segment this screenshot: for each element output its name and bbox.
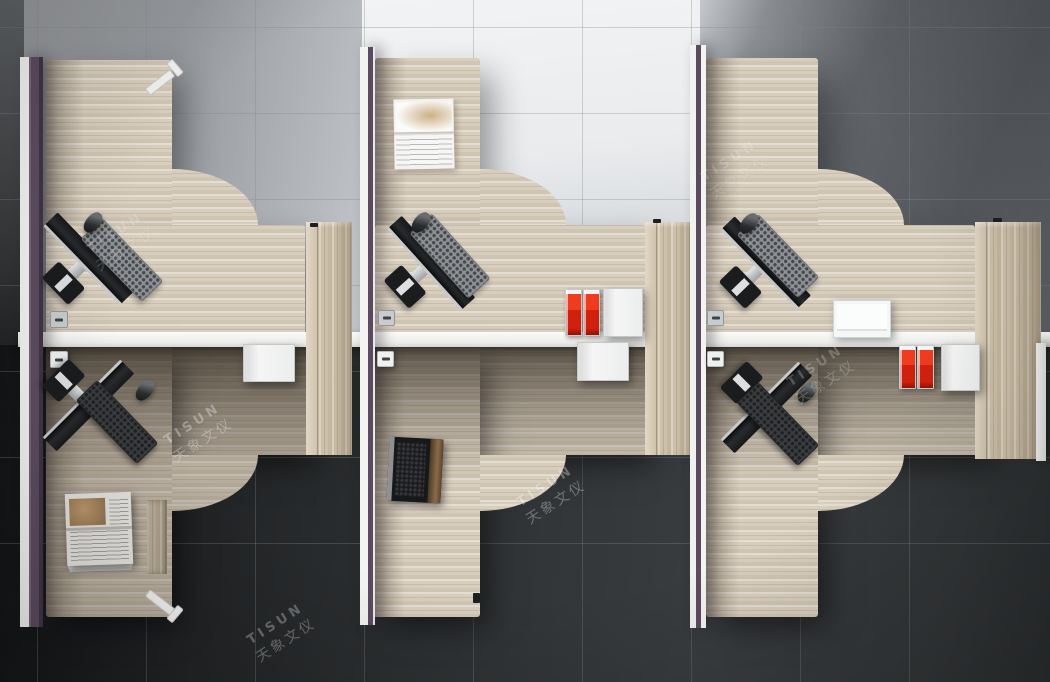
dimlayer <box>172 455 258 511</box>
nw-t2 <box>70 529 129 561</box>
cable-grommet-5 <box>377 351 394 367</box>
storage-cabinet-1 <box>306 222 352 455</box>
cabinet-1-handle <box>310 223 318 227</box>
red-file-2 <box>583 289 600 336</box>
stack-top <box>837 304 887 331</box>
hanging-drawer-2 <box>577 342 629 381</box>
cable-grommet-3 <box>707 310 724 326</box>
cabinet-3-handle <box>993 218 1002 222</box>
nw-img <box>69 498 106 526</box>
grom-slot <box>55 318 63 321</box>
cable-grommet-2 <box>378 310 395 326</box>
laptop <box>386 437 443 504</box>
white-box-2 <box>941 344 980 391</box>
grom-slot <box>55 358 63 361</box>
lp-k <box>395 442 427 497</box>
storage-cabinet-3 <box>975 222 1041 459</box>
white-box-1 <box>603 288 643 337</box>
cable-grommet-1 <box>50 311 68 328</box>
red-file-4 <box>917 345 934 389</box>
cabinet-2-handle <box>653 219 661 223</box>
nw-t1 <box>109 497 128 524</box>
end-panel <box>1036 343 1046 461</box>
paper-stack <box>833 300 891 338</box>
red-file-1 <box>565 289 582 336</box>
under-desk-drawer <box>147 500 167 574</box>
mag-bot <box>396 135 452 166</box>
center-divider <box>18 332 1050 347</box>
grom-slot <box>712 317 720 320</box>
partition-right <box>690 45 706 628</box>
cable-grommet-6 <box>707 351 724 367</box>
red-file-3 <box>899 345 916 389</box>
mag-top <box>396 101 452 132</box>
office-workstation-render: TISUN天象文仪TISUN天象文仪TISUN天象文仪TISUN天象文仪TISU… <box>0 0 1050 682</box>
partition-left <box>20 57 43 627</box>
desk4-curve <box>172 455 258 511</box>
newspaper <box>65 492 133 566</box>
grom-slot <box>383 317 391 320</box>
grom-slot <box>382 358 390 361</box>
desk5-edge-handle <box>473 593 480 603</box>
hanging-drawer-1 <box>243 344 295 382</box>
partition-mid <box>360 47 375 625</box>
open-magazine <box>393 98 454 169</box>
grom-slot <box>712 358 720 361</box>
